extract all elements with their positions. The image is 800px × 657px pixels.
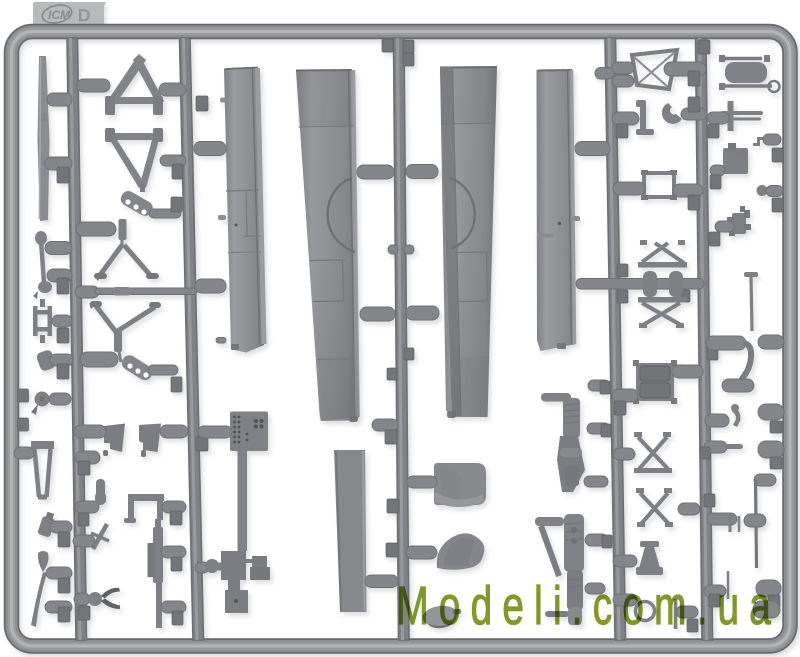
svg-text:D: D <box>78 6 90 25</box>
svg-text:Modeli.com.ua: Modeli.com.ua <box>396 576 781 636</box>
svg-text:ICM: ICM <box>48 8 71 22</box>
